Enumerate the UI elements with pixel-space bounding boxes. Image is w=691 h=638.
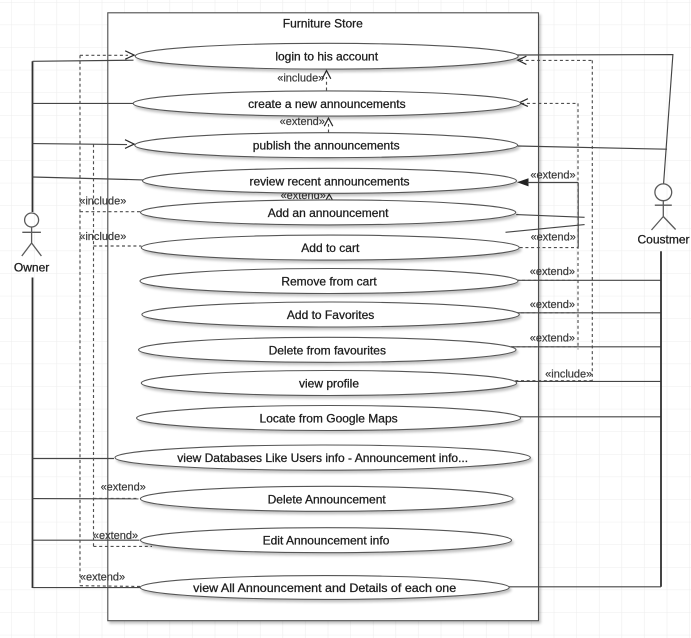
svg-text:Edit Announcement info: Edit Announcement info <box>263 534 390 548</box>
svg-text:Delete from favourites: Delete from favourites <box>269 343 386 357</box>
svg-text:«include»: «include» <box>79 231 126 243</box>
svg-text:publish the announcements: publish the announcements <box>253 139 400 153</box>
svg-text:«include»: «include» <box>79 196 126 208</box>
svg-text:«include»: «include» <box>545 369 592 381</box>
svg-text:«extend»: «extend» <box>101 481 146 493</box>
svg-text:login to his account: login to his account <box>275 50 378 64</box>
svg-text:Locate from Google Maps: Locate from Google Maps <box>260 412 398 426</box>
svg-text:Owner: Owner <box>14 261 49 275</box>
svg-text:Furniture Store: Furniture Store <box>283 17 363 31</box>
svg-text:view All Announcement and Deta: view All Announcement and Details of eac… <box>193 581 456 595</box>
svg-text:Add to Favorites: Add to Favorites <box>287 308 374 322</box>
svg-text:«extend»: «extend» <box>80 571 125 583</box>
svg-text:Coustmer: Coustmer <box>637 233 689 247</box>
svg-text:«extend»: «extend» <box>530 299 575 311</box>
svg-text:«include»: «include» <box>277 73 324 85</box>
svg-text:review recent announcements: review recent announcements <box>249 174 409 188</box>
svg-text:Add an announcement: Add an announcement <box>268 206 389 220</box>
svg-text:view profile: view profile <box>299 377 359 391</box>
svg-text:«extend»: «extend» <box>530 266 575 278</box>
svg-text:«extend»: «extend» <box>531 231 576 243</box>
svg-text:«extend»: «extend» <box>530 169 575 181</box>
svg-text:«extend»: «extend» <box>93 530 138 542</box>
svg-text:«extend»: «extend» <box>280 116 325 128</box>
svg-text:create a new announcements: create a new announcements <box>248 97 405 111</box>
svg-text:view Databases Like Users info: view Databases Like Users info - Announc… <box>177 451 468 465</box>
svg-text:Remove from cart: Remove from cart <box>281 275 377 289</box>
svg-text:«extend»: «extend» <box>530 332 575 344</box>
svg-text:Delete Announcement: Delete Announcement <box>268 492 387 506</box>
svg-text:Add to cart: Add to cart <box>301 241 360 255</box>
